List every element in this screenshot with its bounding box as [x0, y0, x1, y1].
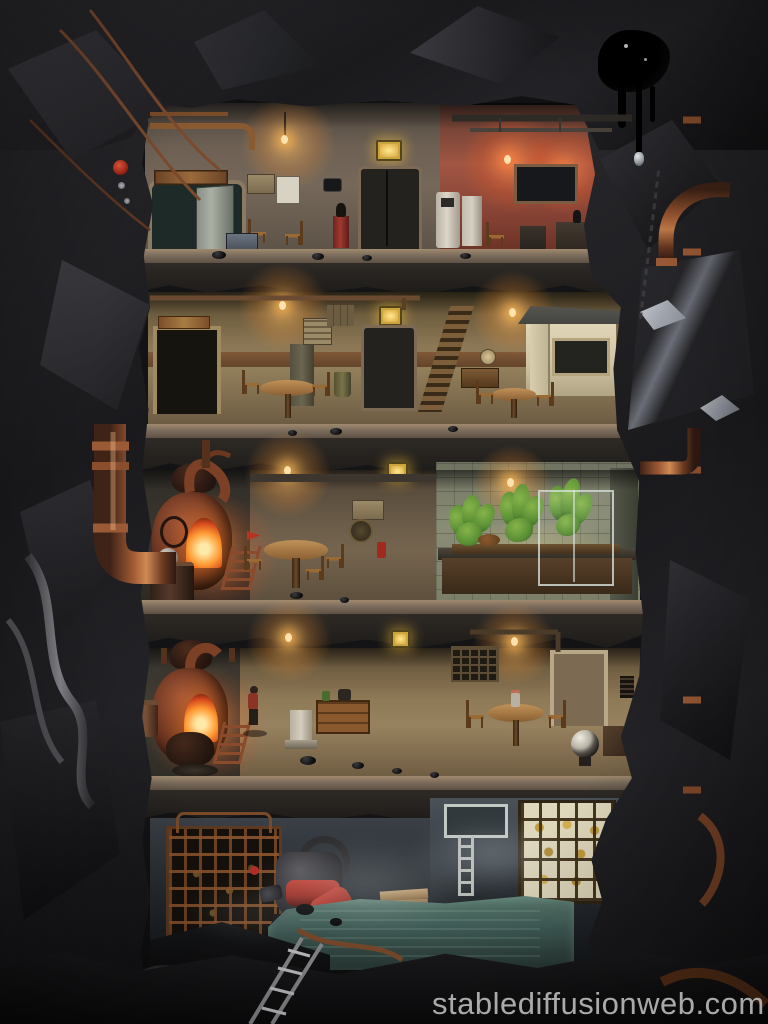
coal-lump: [300, 756, 316, 765]
kitchen-chair: [486, 222, 504, 246]
elevator-door-level1: [358, 166, 422, 254]
tar-gloss-dot: [624, 44, 628, 48]
elevator-indicator-level1: [376, 140, 402, 161]
chair-level2-right-b: [536, 382, 554, 406]
lamp-cord: [284, 112, 286, 136]
person-jacket: [248, 693, 258, 710]
wall-notice-panel: [276, 176, 300, 204]
kitchen-window: [514, 164, 578, 204]
floating-debris: [296, 904, 314, 915]
furnace4-kettle: [170, 640, 212, 670]
coal-lump: [290, 592, 303, 599]
watermark-text: stablediffusionweb.com: [432, 986, 765, 1022]
white-pedestal: [290, 710, 312, 742]
cafe-table: [260, 380, 316, 418]
level2-bulb-right: [509, 308, 516, 317]
metal-stud: [118, 182, 125, 189]
glass-grow-frame: [538, 490, 614, 586]
wooden-dresser: [316, 700, 370, 734]
rock-wall-left: [0, 0, 158, 1024]
black-figurine: [336, 203, 346, 217]
coal-lump: [212, 251, 226, 259]
lamp-bulb: [281, 135, 288, 144]
kiosk-window: [552, 338, 610, 376]
person-legs: [249, 709, 258, 725]
dresser-bag: [338, 689, 351, 701]
cooking-pot: [166, 732, 214, 766]
kitchen-bulb-1: [504, 155, 511, 164]
chair-level3-b: [326, 544, 344, 568]
metal-stud: [124, 198, 130, 204]
coal-lump: [430, 772, 439, 778]
cave-cross-section-scene: stablediffusionweb.com: [0, 0, 768, 1024]
flower-vase: [511, 693, 520, 707]
elevator-level2: [153, 326, 221, 414]
cellar-sign-frame: [444, 804, 508, 838]
level4-bulb: [285, 633, 292, 642]
vent-grille: [620, 676, 634, 698]
red-pedestal: [333, 216, 349, 248]
cage-red-jar: [250, 866, 259, 875]
coal-lump: [340, 597, 349, 603]
fridge: [462, 196, 482, 246]
chair-level2-right-a: [476, 380, 494, 404]
coal-lump: [312, 253, 324, 260]
dispenser-slot: [441, 198, 454, 207]
elevator-indicator-level3: [387, 462, 408, 481]
round-wall-plate: [349, 519, 373, 543]
chair-level3-a: [244, 546, 262, 570]
chair-level4-a: [466, 700, 484, 728]
chair-level4-b: [548, 700, 566, 728]
dining-table-level4: [488, 704, 544, 746]
furnace3-dial: [160, 516, 188, 548]
tile-grid-panel: [327, 305, 354, 326]
black-white-globe: [571, 730, 599, 758]
cage-top-rail: [176, 812, 272, 833]
level2-bulb: [279, 301, 286, 310]
coal-lump: [352, 762, 364, 769]
wall-device: [323, 178, 342, 192]
person-shadow: [243, 730, 267, 737]
coal-lump: [448, 426, 458, 432]
dresser-bottle: [322, 691, 330, 701]
level4-bulb-right: [511, 637, 518, 646]
trash-bin: [334, 372, 351, 397]
chair-level3-c: [306, 556, 324, 580]
chair-level1-b: [285, 221, 303, 245]
coal-lump: [392, 768, 402, 774]
coal-lump: [288, 430, 297, 436]
tar-drip: [636, 74, 642, 158]
fire-extinguisher: [377, 542, 386, 558]
wall-ladder: [458, 836, 474, 896]
coal-lump: [460, 253, 471, 259]
table-level2-right: [492, 388, 536, 418]
coal-lump: [362, 255, 372, 261]
elevator-indicator-level4: [391, 630, 410, 648]
door-nameplate-sign: [154, 170, 228, 185]
grow-frame-mullion: [573, 490, 575, 582]
lettuce-red: [478, 534, 500, 546]
level3-bulb: [284, 466, 291, 475]
wall-clock: [480, 349, 496, 365]
furnace3-kettle: [172, 463, 216, 493]
globe-stand: [579, 757, 591, 766]
cafe-chair-right: [312, 372, 330, 396]
dark-door-level2: [361, 325, 417, 411]
grow-light-bulb: [507, 478, 514, 487]
elevator-sign-level2: [158, 316, 210, 329]
slab4-surface: [140, 776, 652, 792]
red-button: [111, 158, 130, 177]
desk-bottle: [573, 210, 581, 223]
slab2-surface: [140, 424, 645, 440]
tar-drop-glossy: [634, 152, 644, 166]
slab1-underside: [138, 263, 646, 295]
tar-drip: [618, 82, 626, 128]
coal-lump: [330, 428, 342, 435]
tar-gloss-dot: [644, 58, 647, 61]
slab3-surface: [138, 600, 648, 616]
cafe-chair-left: [242, 370, 260, 394]
wall-frame-level3: [352, 500, 384, 520]
pedestal-base: [285, 740, 317, 749]
bottle-display-shelf: [451, 646, 499, 682]
floating-debris: [330, 918, 342, 926]
wall-frame: [247, 174, 275, 194]
elevator-door-split: [386, 170, 388, 246]
tar-drip: [650, 86, 655, 122]
level1-ceiling-shadow: [145, 103, 640, 129]
elevator-indicator-level2: [379, 306, 402, 326]
